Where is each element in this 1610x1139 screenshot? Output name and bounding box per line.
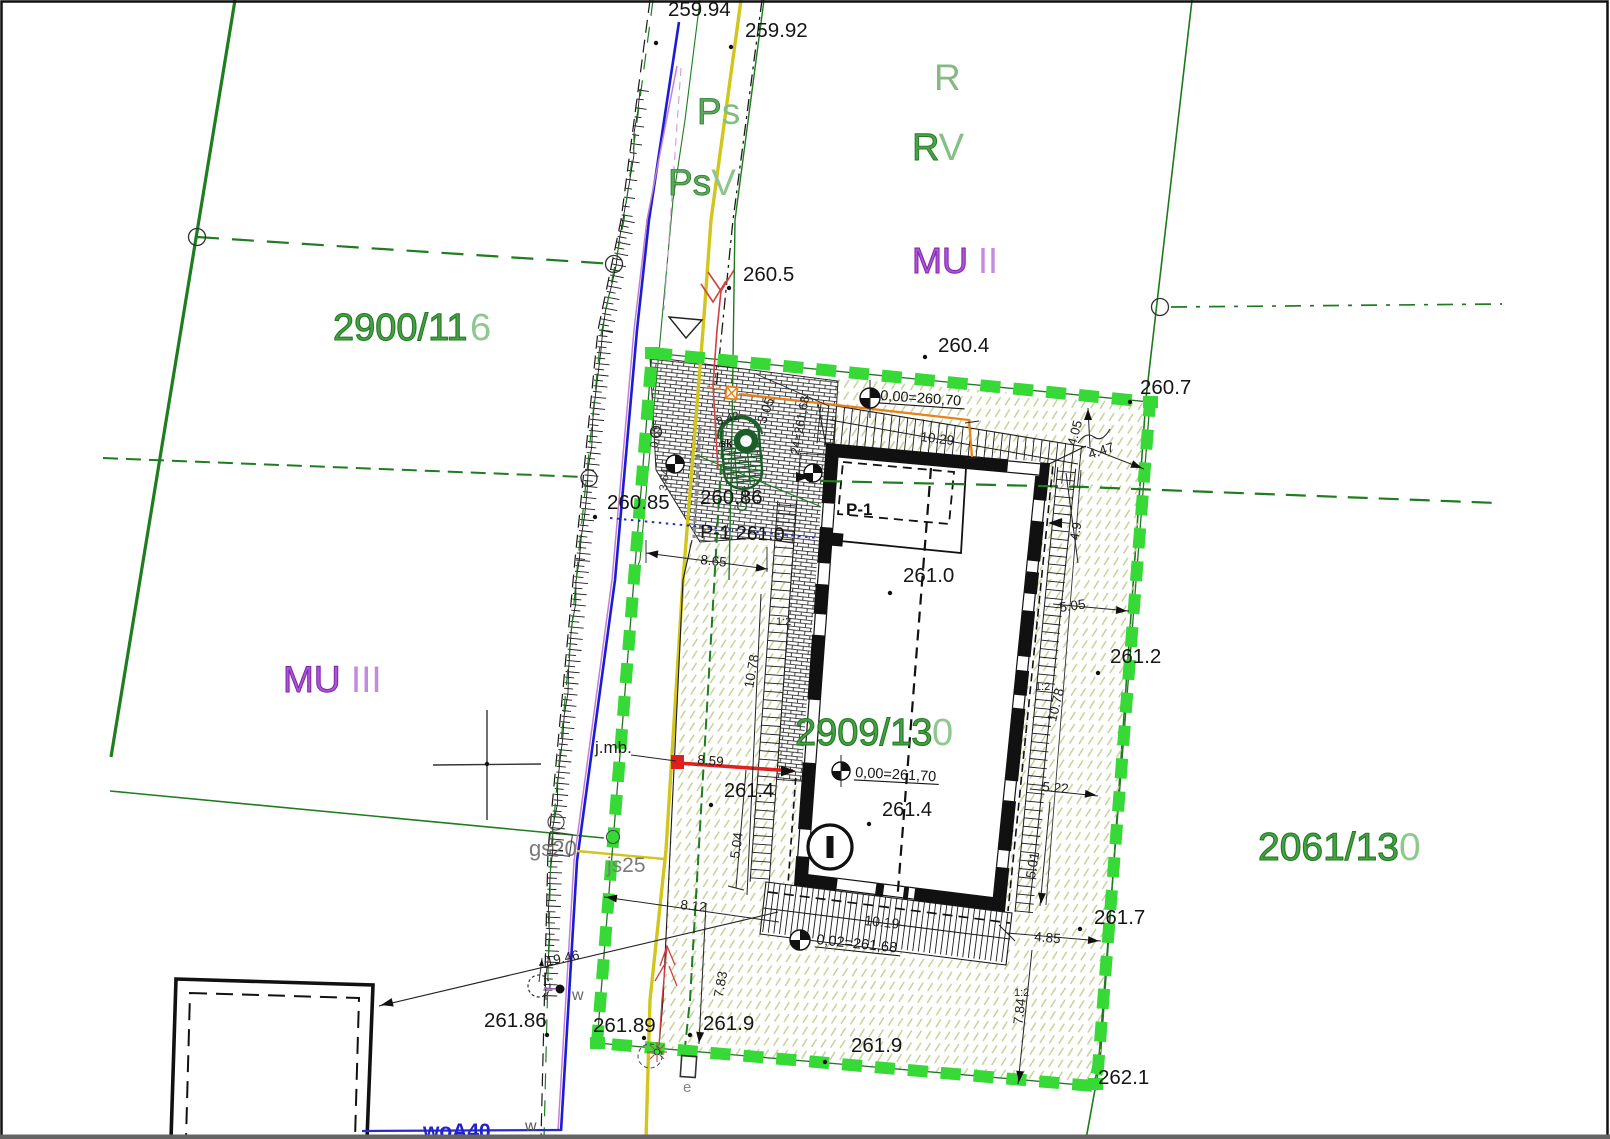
svg-text:0: 0 xyxy=(1399,826,1421,869)
svg-text:js25: js25 xyxy=(606,854,646,877)
svg-text:MU III: MU III xyxy=(283,659,382,700)
svg-text:e: e xyxy=(683,1079,691,1096)
svg-text:261.7: 261.7 xyxy=(1094,906,1145,929)
svg-text:8.65: 8.65 xyxy=(700,552,728,570)
svg-text:260.86: 260.86 xyxy=(700,486,763,509)
svg-text:w: w xyxy=(524,1118,537,1135)
svg-text:261.9: 261.9 xyxy=(703,1012,754,1035)
svg-text:261.4: 261.4 xyxy=(724,780,774,802)
svg-text:2909/13: 2909/13 xyxy=(795,712,932,754)
svg-text:j.mb.: j.mb. xyxy=(594,738,632,757)
svg-text:260.7: 260.7 xyxy=(1140,376,1191,399)
svg-text:1:2: 1:2 xyxy=(1014,987,1029,999)
svg-text:w: w xyxy=(571,987,584,1004)
svg-text:259.92: 259.92 xyxy=(745,19,808,42)
svg-text:2900/11: 2900/11 xyxy=(333,307,468,349)
svg-text:261.9: 261.9 xyxy=(851,1034,902,1057)
svg-text:8.59: 8.59 xyxy=(697,752,724,769)
svg-text:8.12: 8.12 xyxy=(680,897,708,915)
svg-text:260.5: 260.5 xyxy=(743,263,794,286)
svg-text:2061/13: 2061/13 xyxy=(1258,826,1399,869)
svg-text:RV: RV xyxy=(912,127,965,169)
svg-text:260.4: 260.4 xyxy=(938,334,989,357)
svg-text:4.85: 4.85 xyxy=(1034,929,1061,946)
svg-text:3.64: 3.64 xyxy=(658,467,672,491)
svg-text:259.94: 259.94 xyxy=(668,0,731,21)
svg-text:R: R xyxy=(934,57,961,98)
svg-text:0.63: 0.63 xyxy=(649,425,663,449)
svg-text:261.86: 261.86 xyxy=(484,1009,547,1032)
svg-text:PsV: PsV xyxy=(668,162,736,203)
svg-text:1:2: 1:2 xyxy=(776,616,791,628)
svg-text:P-1: P-1 xyxy=(846,500,872,519)
svg-text:261.2: 261.2 xyxy=(1110,645,1161,668)
svg-text:261.0: 261.0 xyxy=(903,564,954,587)
svg-text:262.1: 262.1 xyxy=(1098,1066,1149,1089)
svg-text:0: 0 xyxy=(932,712,953,754)
svg-text:Ps: Ps xyxy=(697,91,740,132)
svg-text:sk: sk xyxy=(720,438,733,450)
svg-text:261.4: 261.4 xyxy=(882,799,932,821)
svg-text:260.85: 260.85 xyxy=(607,491,670,514)
svg-text:gs20: gs20 xyxy=(529,836,577,861)
svg-text:P-1 261.0: P-1 261.0 xyxy=(700,521,785,546)
svg-text:4.9: 4.9 xyxy=(1067,521,1085,541)
svg-text:5.22: 5.22 xyxy=(1042,779,1069,796)
svg-text:6: 6 xyxy=(470,307,491,349)
svg-text:1:2: 1:2 xyxy=(1035,681,1050,693)
svg-text:261.89: 261.89 xyxy=(593,1014,656,1037)
svg-text:MU II: MU II xyxy=(912,240,998,281)
